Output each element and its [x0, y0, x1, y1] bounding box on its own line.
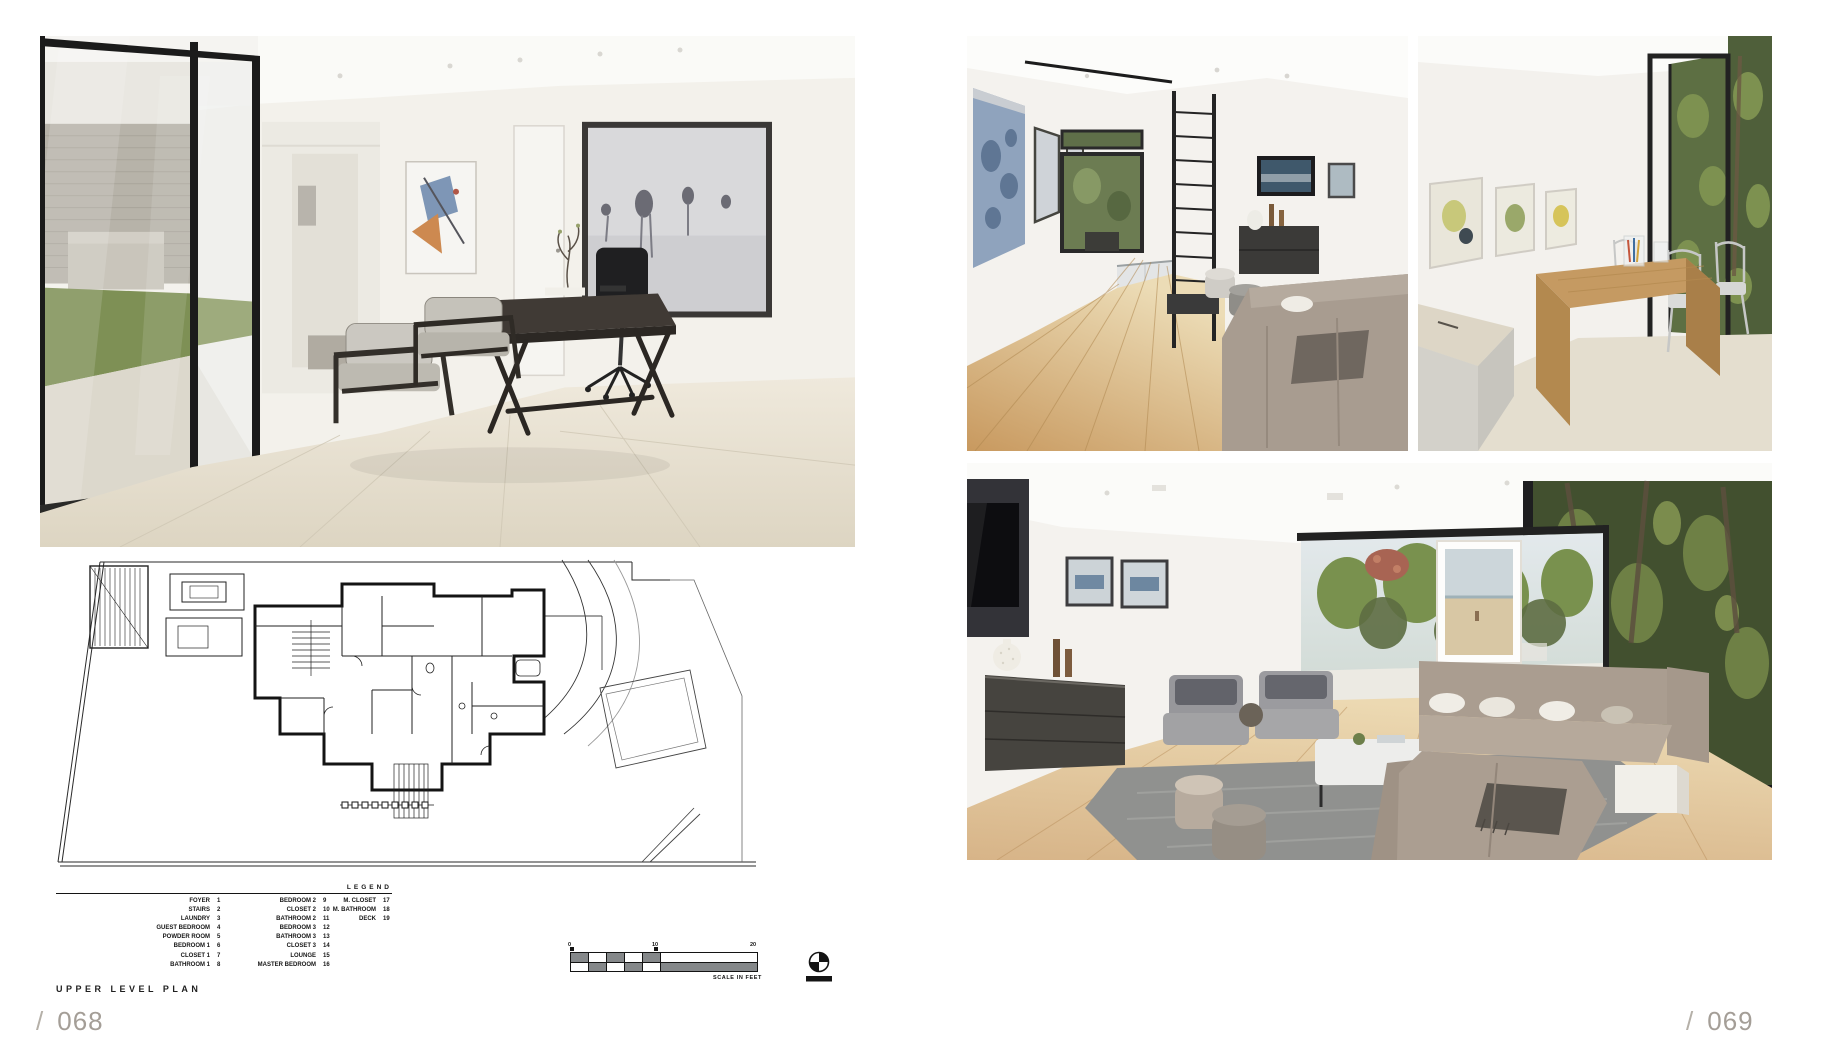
scale-caption: SCALE IN FEET — [713, 975, 762, 981]
living-tv-panel — [967, 479, 1029, 637]
legend-title: LEGEND — [56, 884, 392, 891]
photo-home-office-art — [40, 36, 855, 547]
legend-column-2: BEDROOM 29 CLOSET 210 BATHROOM 211 BEDRO… — [226, 898, 332, 968]
plan-neighbor-structure — [544, 616, 706, 862]
legend-item: BATHROOM 211 — [226, 916, 332, 923]
plan-deck-posts — [340, 802, 434, 808]
photo-home-office — [40, 36, 855, 547]
plan-house-walls — [255, 584, 544, 818]
floor-plan-drawing — [42, 556, 762, 886]
hall-artwork-blue — [973, 88, 1025, 268]
legend-item: LOUNGE15 — [226, 953, 332, 960]
photo-dining — [1418, 36, 1772, 451]
scale-mark — [654, 947, 658, 951]
legend-item: CLOSET 17 — [56, 953, 226, 960]
photo-living-room — [967, 463, 1772, 860]
legend-item: MASTER BEDROOM16 — [226, 962, 332, 969]
page-number-left: / 068 — [36, 1006, 104, 1037]
legend-columns: FOYER1 STAIRS2 LAUNDRY3 GUEST BEDROOM4 P… — [56, 898, 392, 968]
page-number-right: / 069 — [1686, 1006, 1754, 1037]
legend-item: M. BATHROOM18 — [332, 907, 392, 914]
photo-dining-art — [1418, 36, 1772, 451]
photo-hallway-art — [967, 36, 1408, 451]
office-glass-doors-exterior — [40, 36, 258, 505]
legend-column-3: M. CLOSET17 M. BATHROOM18 DECK19 — [332, 898, 392, 968]
legend-item: M. CLOSET17 — [332, 898, 392, 905]
scale-mark — [570, 947, 574, 951]
legend-column-1: FOYER1 STAIRS2 LAUNDRY3 GUEST BEDROOM4 P… — [56, 898, 226, 968]
scale-tick-20: 20 — [750, 942, 756, 948]
photo-living-room-art — [967, 463, 1772, 860]
living-beach-art — [1437, 541, 1521, 663]
hall-frame-right — [1329, 164, 1354, 197]
living-white-cube — [1615, 765, 1689, 815]
north-arrow-icon — [806, 950, 834, 984]
book-spread: LEGEND FOYER1 STAIRS2 LAUNDRY3 GUEST BED… — [0, 0, 1824, 1058]
photo-hallway — [967, 36, 1408, 451]
legend-item: BEDROOM 312 — [226, 925, 332, 932]
legend-item: CLOSET 314 — [226, 943, 332, 950]
legend-item: BATHROOM 18 — [56, 962, 226, 969]
plan-driveway-curves — [540, 560, 639, 746]
plan-title: UPPER LEVEL PLAN — [56, 984, 201, 994]
legend-item: BEDROOM 29 — [226, 898, 332, 905]
legend-item: FOYER1 — [56, 898, 226, 905]
legend-item: LAUNDRY3 — [56, 916, 226, 923]
scale-bar-graphic — [570, 952, 758, 972]
legend-rule — [56, 893, 392, 894]
legend-item: BATHROOM 313 — [226, 934, 332, 941]
hall-end-window — [1062, 131, 1142, 251]
legend-item: CLOSET 210 — [226, 907, 332, 914]
plan-legend: LEGEND FOYER1 STAIRS2 LAUNDRY3 GUEST BED… — [56, 884, 392, 968]
legend-item: GUEST BEDROOM4 — [56, 925, 226, 932]
plan-trellis — [90, 566, 148, 648]
scale-bar: 0 10 20 SCALE IN FEET — [570, 942, 762, 986]
office-artwork-small — [406, 162, 476, 274]
hall-sofa — [1222, 274, 1408, 451]
legend-item: POWDER ROOM5 — [56, 934, 226, 941]
legend-item: BEDROOM 16 — [56, 943, 226, 950]
plan-roof-objects — [166, 574, 244, 656]
legend-item: DECK19 — [332, 916, 392, 923]
legend-item: STAIRS2 — [56, 907, 226, 914]
hall-tv — [1257, 156, 1315, 196]
